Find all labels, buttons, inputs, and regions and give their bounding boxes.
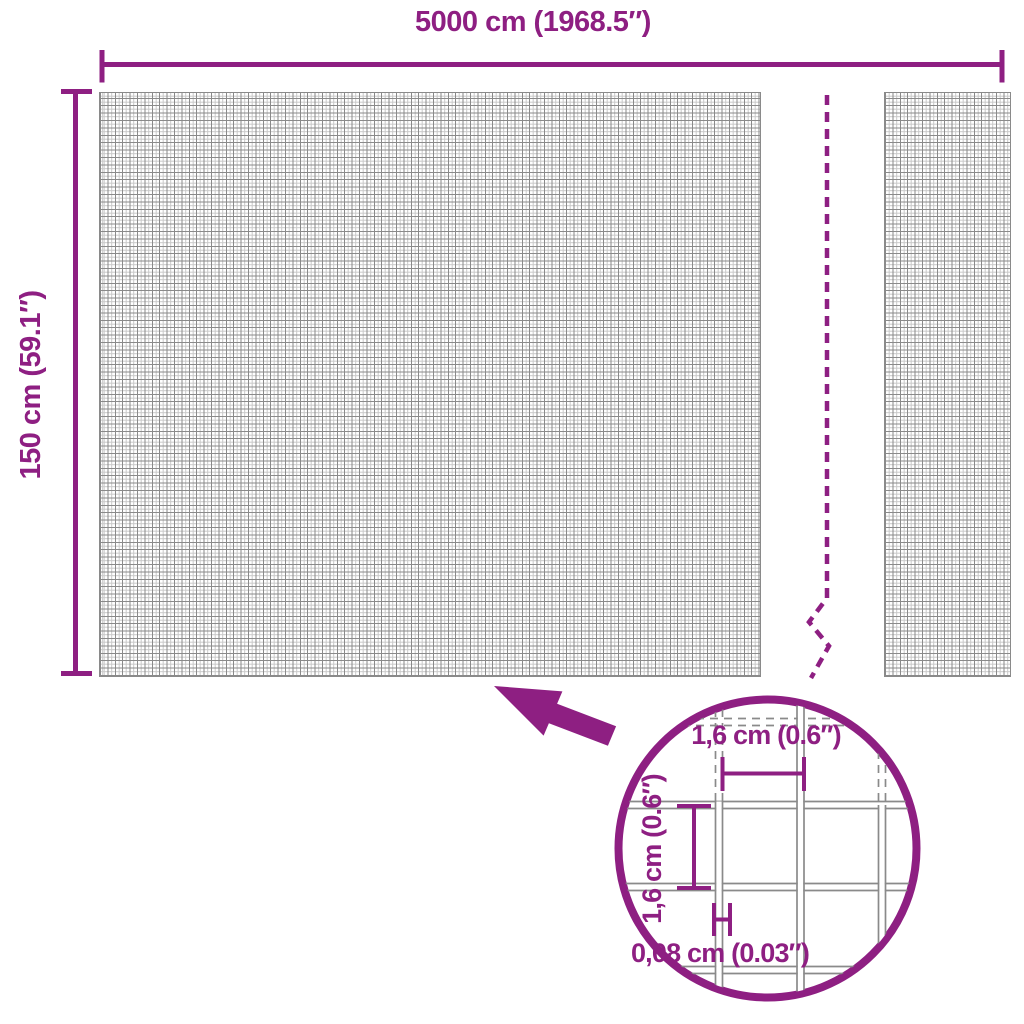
mesh-width-label: 1,6 cm (0.6″) — [691, 720, 841, 750]
zoom-pointer-arrow-icon — [494, 686, 616, 746]
width-dimension: 5000 cm (1968.5″) — [102, 6, 1002, 83]
roll-break-dashed-line — [809, 95, 829, 678]
height-dimension: 150 cm (59.1″) — [15, 92, 92, 674]
wire-weave-gap — [879, 805, 885, 1002]
wire-thickness-label: 0,08 cm (0.03″) — [631, 938, 809, 968]
zoom-detail-inset: 1,6 cm (0.6″) 1,6 cm (0.6″) 0,08 cm (0.0… — [612, 695, 925, 1003]
width-dimension-label: 5000 cm (1968.5″) — [415, 6, 651, 38]
wire-weave-gap — [716, 802, 722, 1003]
mesh-height-label: 1,6 cm (0.6″) — [637, 774, 667, 924]
height-dimension-label: 150 cm (59.1″) — [15, 290, 47, 479]
fence-dimension-diagram: 5000 cm (1968.5″) 150 cm (59.1″) — [0, 0, 1024, 1024]
diagram-overlay: 5000 cm (1968.5″) 150 cm (59.1″) — [0, 0, 1024, 1024]
